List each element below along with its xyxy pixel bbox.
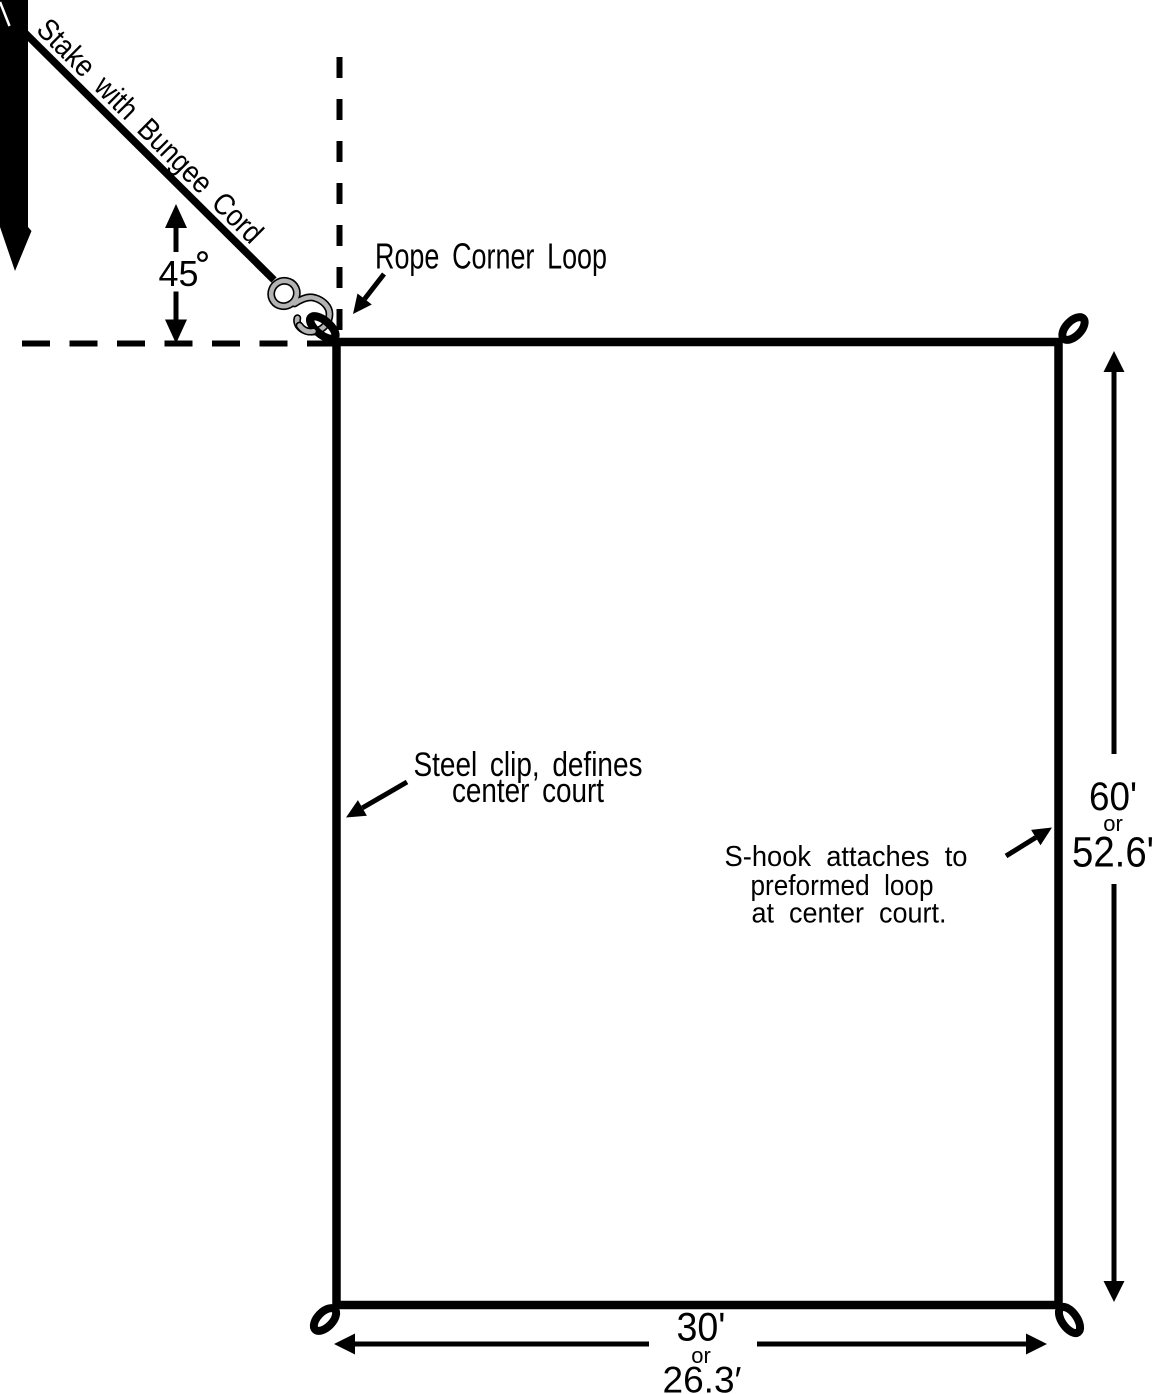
svg-text:45: 45 xyxy=(158,253,198,294)
svg-text:S-hook attaches to: S-hook attaches to xyxy=(725,841,968,873)
svg-text:26.3′: 26.3′ xyxy=(663,1360,742,1394)
svg-text:Stake with Bungee Cord: Stake with Bungee Cord xyxy=(30,12,270,250)
svg-text:at center court.: at center court. xyxy=(752,898,947,930)
svg-text:52.6': 52.6' xyxy=(1072,829,1152,877)
svg-text:center court: center court xyxy=(452,772,604,810)
svg-text:Rope Corner Loop: Rope Corner Loop xyxy=(375,236,607,277)
